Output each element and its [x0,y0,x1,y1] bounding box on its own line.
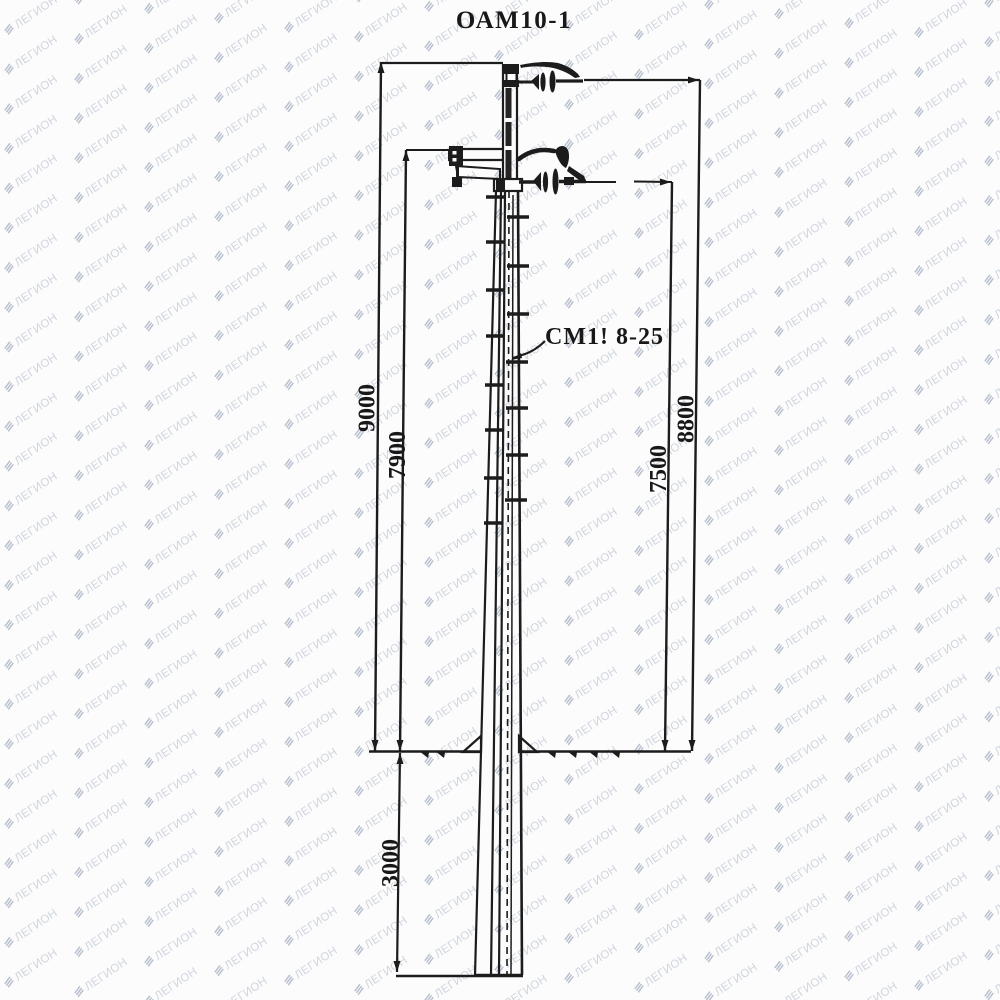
svg-text:СМ1! 8-25: СМ1! 8-25 [545,324,664,350]
svg-text:ОАМ10-1: ОАМ10-1 [456,7,572,34]
svg-text:3000: 3000 [378,839,404,887]
svg-text:7500: 7500 [646,445,672,493]
svg-text:7900: 7900 [385,431,411,479]
svg-text:8800: 8800 [674,395,700,443]
svg-text:9000: 9000 [355,384,381,432]
